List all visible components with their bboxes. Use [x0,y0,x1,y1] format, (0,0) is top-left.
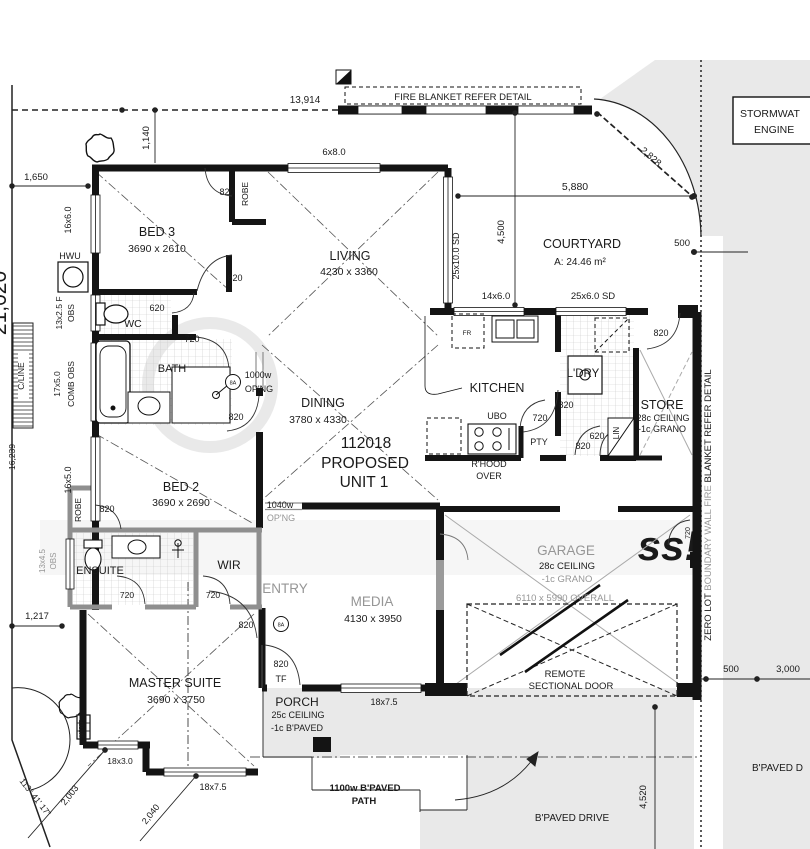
door-820-kitchen: 820 [558,400,573,410]
room-label-wc: WC [124,318,142,330]
fixture-bath-vanity [128,392,170,423]
kitchen-bench [425,316,462,394]
label-bpaved-drive: B'PAVED DRIVE [535,813,610,824]
note-stormwater-line2: ENGINE [754,124,794,136]
label-hwu: HWU [59,251,81,261]
fixture-bath-shower [172,367,230,423]
window-13x45-b: OBS [49,553,58,570]
label-rhood-line1: R'HOOD [471,459,507,469]
dim-1650: 1,650 [24,172,48,183]
smoke-alarm-2: 8A [278,623,285,629]
dim-21020: 21,020 [0,271,11,335]
tree-icon [59,694,83,718]
window-13x25-b: OBS [66,304,76,322]
dim-2040: 2,040 [140,802,162,826]
door-820-store: 820 [653,328,668,338]
window-13x25-a: 13x2.5 F [54,296,64,329]
door-820-front: 820 [273,659,288,669]
door-820-entry: 820 [238,620,253,630]
window-6x8: 6x8.0 [322,147,345,158]
fixture-ensuite-vanity [112,536,160,558]
window-14x6: 14x6.0 [482,291,511,302]
garage-overall: 6110 x 5990 OVERALL [516,593,614,604]
store-floor: -1c GRANO [638,424,686,434]
door-820-bed3a: 820 [219,187,234,197]
window-25x6: 25x6.0 SD [571,291,615,302]
room-dims-media: 4130 x 3950 [344,613,402,625]
porch-ceiling: 25c CEILING [271,710,324,720]
dim-2003: 2,003 [59,783,81,807]
room-label-store: STORE [641,398,684,412]
room-label-wir: WIR [217,558,241,572]
dim-1217: 1,217 [25,611,49,622]
fixture-dishwasher [427,418,461,454]
door-820-robe2: 820 [99,504,114,514]
label-meter: METER [79,719,85,737]
tree-icon [86,134,114,162]
fixture-kitchen-sink [492,316,538,342]
garage-door-line1: REMOTE [545,669,586,680]
window-17x5-b: COMB OBS [66,361,76,407]
room-label-pty: PTY [530,437,548,447]
dim-2828: 2,828 [638,145,663,169]
fixture-wc-toilet [96,303,128,325]
unit-title-line2: PROPOSED [321,455,409,472]
note-fire-blanket: FIRE BLANKET REFER DETAIL [394,92,531,103]
room-area-courtyard: A: 24.46 m² [554,257,606,268]
floor-plan-drawing: ss! [0,0,810,849]
zero-lot-part2: BOUNDARY WALL FIRE [703,482,714,590]
room-label-garage: GARAGE [537,543,595,558]
level-marker-icon [336,70,351,84]
dim-500-right: 500 [723,664,739,675]
dim-4520: 4,520 [638,785,649,809]
room-label-ensuite: ENSUITE [76,565,124,577]
label-rhood-line2: OVER [476,471,502,481]
room-label-dining: DINING [301,396,345,410]
label-cline: C/LINE [16,362,26,390]
door-820-ldry: 820 [575,441,590,451]
zero-lot-part1: ZERO LOT [703,591,714,641]
garage-floor: -1c GRANO [542,574,593,585]
opening-1040-w: 1040w [267,500,294,510]
dim-16239: 16,239 [7,444,17,470]
room-label-bed2: BED 2 [163,480,199,494]
door-720-pantry: 720 [532,413,547,423]
room-dims-master: 3690 x 3750 [147,694,205,706]
dim-5880: 5,880 [562,181,588,193]
stormwater-note-box [733,97,810,144]
label-bpaved-d: B'PAVED D [752,763,803,774]
window-13x45-a: 13x4.5 [38,548,47,573]
floor-plan-canvas: ss! [0,0,810,849]
opening-1000-l: OP'NG [245,384,273,394]
unit-title-line1: 112018 [341,435,392,452]
label-fridge: FR [463,330,472,337]
zero-lot-part3: BLANKET REFER DETAIL [703,369,714,482]
label-robe-bed2: ROBE [73,498,83,522]
garage-ceiling: 28c CEILING [539,561,595,572]
store-ceiling: 28c CEILING [636,413,689,423]
window-18x75-a: 18x7.5 [199,782,226,792]
dim-3000: 3,000 [776,664,800,675]
fixture-bathtub [96,341,130,423]
label-path-line2: PATH [352,796,377,807]
label-path-line1: 1100w B'PAVED [329,783,400,794]
room-label-kitchen: KITCHEN [470,381,525,395]
dim-13914: 13,914 [290,95,321,106]
room-dims-dining: 3780 x 4330 [289,414,347,426]
door-720-garage: 720 [685,527,692,539]
room-label-master: MASTER SUITE [129,676,221,690]
door-720-wir: 720 [206,590,220,600]
garage-door-line2: SECTIONAL DOOR [529,681,614,692]
door-820-bed3b: 820 [227,273,242,283]
room-label-bath: BATH [158,363,187,375]
room-dims-living: 4230 x 3360 [320,266,378,278]
dim-4500: 4,500 [496,220,507,244]
room-label-porch: PORCH [275,695,318,709]
fixture-cooktop [468,424,516,454]
room-label-bed3: BED 3 [139,225,175,239]
window-16x6: 16x6.0 [63,206,73,233]
room-label-ldry: L'DRY [567,368,600,380]
window-18x75-b: 18x7.5 [370,697,397,707]
room-dims-bed3: 3690 x 2610 [128,243,186,255]
porch-floor: -1c B'PAVED [271,723,323,733]
note-stormwater-line1: STORMWAT [740,108,800,120]
door-620-ldry: 620 [589,431,604,441]
window-17x5-a: 17x5.0 [52,371,62,397]
door-front-tf: TF [276,674,287,684]
window-18x3: 18x3.0 [107,756,133,766]
room-dims-bed2: 3690 x 2690 [152,497,210,509]
window-16x5: 16x5.0 [63,466,73,493]
door-620-wc: 620 [149,303,164,313]
door-720-ensuite: 720 [120,590,134,600]
room-label-media: MEDIA [351,594,394,609]
room-label-living: LIVING [330,249,371,263]
door-820-bed2: 820 [228,412,243,422]
window-25x10: 25x10.0 SD [451,232,461,280]
door-720-bath: 720 [184,334,199,344]
opening-1040-l: OP'NG [267,513,295,523]
dim-1140: 1,140 [141,126,152,150]
label-ubo: UBO [487,411,507,421]
smoke-alarm-1: 8A [230,381,237,387]
fixture-hwu [58,262,88,292]
dim-500-top: 500 [674,238,690,249]
room-label-lin: LIN [612,427,621,440]
note-zero-lot-wall: ZERO LOT BOUNDARY WALL FIRE BLANKET REFE… [703,369,714,640]
opening-1000-w: 1000w [245,370,272,380]
unit-title-line3: UNIT 1 [340,474,389,491]
label-robe-bed3: ROBE [240,182,250,206]
room-label-courtyard: COURTYARD [543,237,621,251]
room-label-entry: ENTRY [262,581,308,596]
